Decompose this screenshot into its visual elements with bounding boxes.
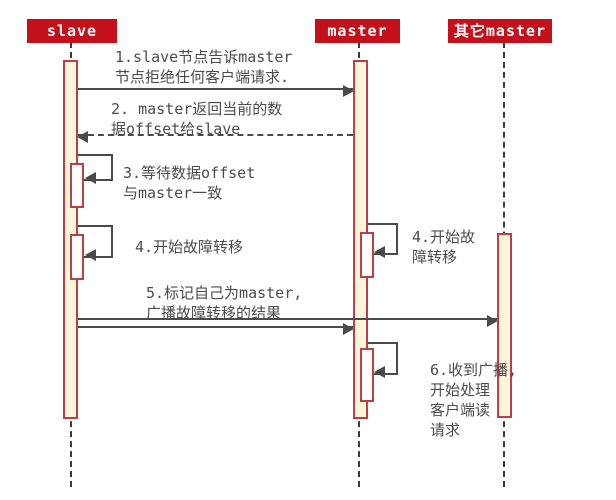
message-label-4-slave: 4.开始故障转移 xyxy=(135,237,243,257)
message-label-6: 6.收到广播, 开始处理 客户端读 请求 xyxy=(430,360,517,440)
arrowhead-left-icon xyxy=(374,246,385,258)
message-arrow-1-slave-to-master xyxy=(78,88,353,90)
message-arrow-5-slave-to-master xyxy=(78,326,353,328)
participant-header-master: master xyxy=(315,19,400,43)
message-label-2: 2. master返回当前的数 据offset给slave xyxy=(111,99,282,139)
participant-header-slave: slave xyxy=(27,19,117,43)
arrowhead-right-icon xyxy=(343,85,354,97)
arrowhead-right-icon xyxy=(487,315,498,327)
message-label-4-master: 4.开始故 障转移 xyxy=(412,227,475,267)
arrowhead-left-icon xyxy=(85,172,96,184)
self-activation-slave-3 xyxy=(70,163,84,208)
participant-header-other-master: 其它master xyxy=(448,19,552,43)
arrowhead-left-icon xyxy=(374,366,385,378)
self-activation-master-4 xyxy=(360,232,374,278)
self-activation-slave-4 xyxy=(70,234,84,280)
arrowhead-left-icon xyxy=(85,249,96,261)
arrowhead-left-icon xyxy=(77,131,88,143)
arrowhead-right-icon xyxy=(343,323,354,335)
message-label-3: 3.等待数据offset 与master一致 xyxy=(123,163,255,203)
message-label-1: 1.slave节点告诉master 节点拒绝任何客户端请求. xyxy=(115,47,292,87)
self-activation-master-6 xyxy=(360,348,374,402)
sequence-diagram: slave master 其它master 1.slave节点告诉master … xyxy=(0,0,616,500)
message-label-5: 5.标记自己为master, 广播故障转移的结果 xyxy=(146,283,302,323)
